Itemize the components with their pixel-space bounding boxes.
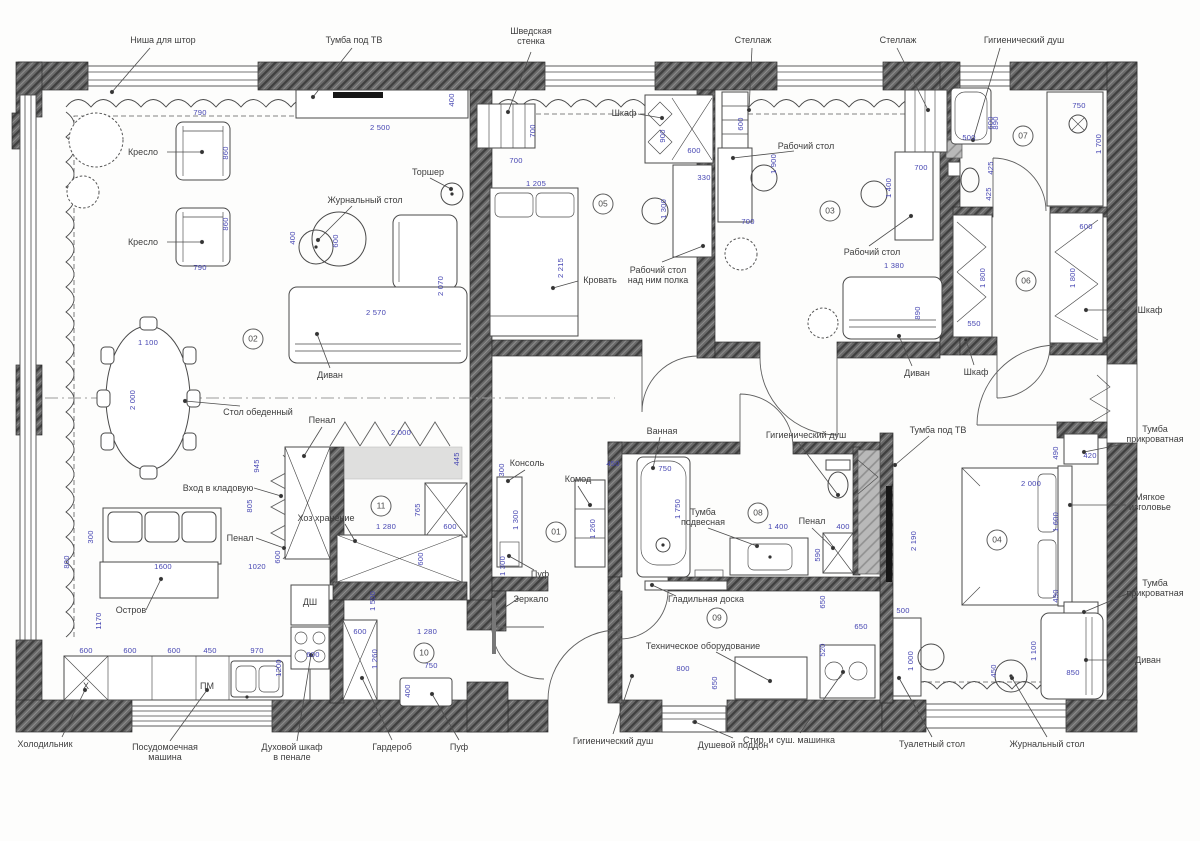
wardrobe-06-furniture [953, 213, 1103, 343]
bedroom-04-furniture [886, 434, 1103, 699]
armchair [176, 208, 230, 266]
bathroom-07-furniture [948, 88, 1103, 206]
kitchen-furniture [64, 447, 330, 700]
office-03-furniture [718, 90, 947, 339]
bathroom-08-furniture [637, 457, 878, 577]
floor-plan-page: Ниша для шторТумба под ТВШведская стенка… [0, 0, 1200, 841]
living-room-furniture [67, 90, 468, 479]
floor-plan-drawing [0, 0, 1200, 841]
doors [271, 158, 1057, 700]
